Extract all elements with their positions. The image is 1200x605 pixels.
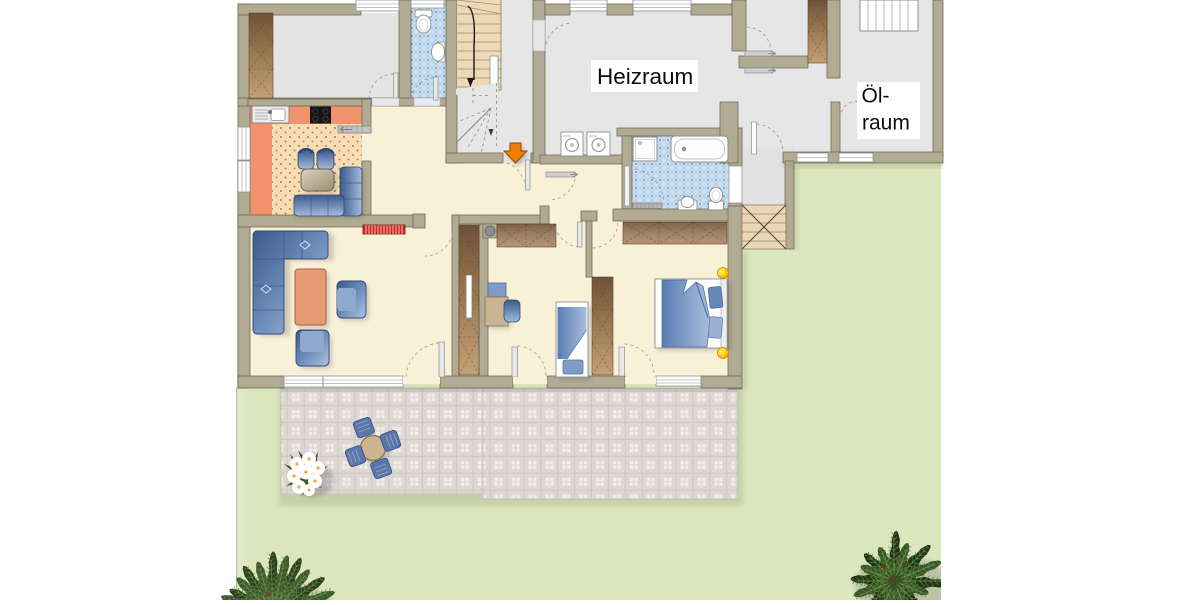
svg-text:raum: raum (862, 112, 910, 135)
svg-text:Heizraum: Heizraum (597, 64, 693, 89)
svg-text:Öl-: Öl- (862, 85, 890, 108)
